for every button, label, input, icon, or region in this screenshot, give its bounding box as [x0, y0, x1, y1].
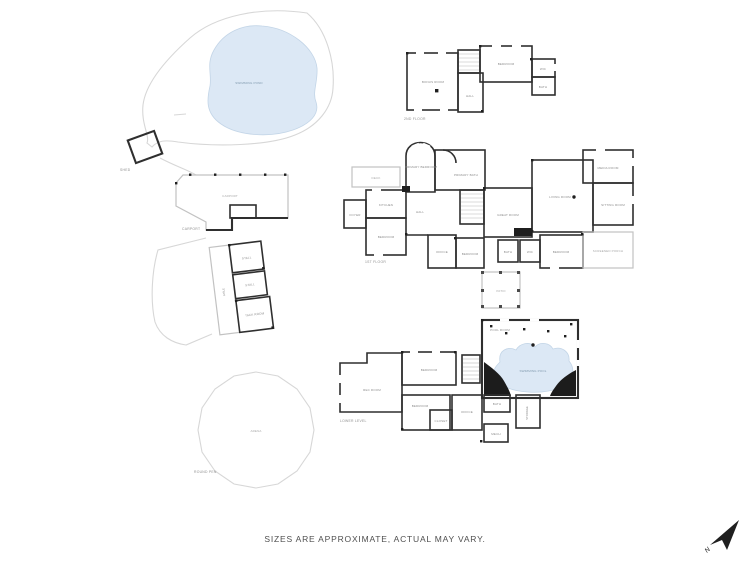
door-jamb — [406, 52, 408, 54]
patio-post — [481, 305, 484, 308]
primary-bath-label: PRIMARY BATH — [454, 173, 478, 177]
first-floor-plan: PRIMARY BEDROOM PRIMARY BATH GREAT ROOM … — [344, 143, 633, 309]
stair-hatch — [463, 359, 479, 379]
patio-post — [481, 271, 484, 274]
lot-tick — [174, 114, 186, 115]
patio-post — [481, 289, 484, 292]
bath-label: BATH — [493, 402, 501, 406]
door-jamb — [454, 237, 456, 239]
round-pen-caption: ROUND PEN — [194, 470, 217, 474]
pond-label: SWIMMING POND — [235, 81, 263, 85]
post-marker — [264, 174, 266, 176]
door-jamb — [454, 351, 456, 353]
foyer-label: FOYER — [349, 213, 361, 217]
patio-post — [517, 305, 520, 308]
shed-walls — [128, 131, 163, 163]
site-pond: SWIMMING POND — [143, 11, 334, 175]
post-marker — [175, 182, 177, 184]
door-jamb — [235, 299, 238, 302]
patio-label: PATIO — [496, 289, 506, 293]
site-barn: AISLE STALL STALL TACK ROOM — [152, 238, 274, 345]
stair-room — [458, 50, 480, 73]
barn-aisle-label: AISLE — [221, 288, 226, 296]
post-marker — [531, 343, 534, 346]
lower-level-plan: POOL ROOM SWIMMING POOL — [340, 319, 578, 442]
rec-room-label: REC ROOM — [363, 388, 381, 392]
door-jamb — [581, 233, 583, 235]
chimney-marker — [435, 89, 438, 92]
chimney — [402, 186, 410, 192]
door-jamb — [481, 319, 483, 321]
post-marker — [284, 174, 286, 176]
shed-caption: SHED — [120, 168, 131, 172]
stair-hatch — [461, 194, 483, 218]
first-floor-caption: 1ST FLOOR — [365, 260, 386, 264]
door-jamb — [531, 159, 533, 161]
door-jamb — [483, 187, 485, 189]
post-marker — [570, 323, 572, 325]
disclaimer-text: SIZES ARE APPROXIMATE, ACTUAL MAY VARY. — [0, 534, 750, 544]
column-marker — [572, 195, 575, 198]
patio-post — [517, 271, 520, 274]
site-carport: CARPORT CARPORT — [175, 174, 288, 232]
bedroom-label: BEDROOM — [498, 62, 515, 66]
patio-post — [517, 289, 520, 292]
second-floor-plan: BONUS ROOM BEDROOM WIC BATH HALL 2ND FLO… — [404, 45, 555, 121]
carport-caption: CARPORT — [182, 227, 200, 231]
lower-level-caption: LOWER LEVEL — [340, 419, 367, 423]
round-pen-label: ARENA — [250, 429, 261, 433]
bedroom-mid-label: BEDROOM — [462, 252, 479, 256]
stair-hatch — [459, 54, 479, 70]
bonus-room-label: BONUS ROOM — [422, 80, 445, 84]
door-jamb — [401, 428, 403, 430]
great-room-label: GREAT ROOM — [497, 213, 519, 217]
barn-stall1-label: STALL — [242, 255, 252, 260]
mech-label: MECH — [491, 432, 500, 436]
bath-label: BATH — [539, 85, 547, 89]
carport-storage-room — [230, 205, 256, 218]
carport-label: CARPORT — [222, 194, 238, 198]
closet-label: CLOSET — [435, 419, 448, 423]
trail-line — [160, 158, 196, 175]
door-jamb — [228, 244, 231, 247]
post-marker — [214, 174, 216, 176]
curved-closet-wall — [443, 150, 456, 163]
primary-bath — [435, 150, 485, 190]
door-jamb — [271, 326, 274, 329]
door-jamb — [401, 351, 403, 353]
storage-label: STORAGE — [525, 406, 529, 420]
door-jamb — [531, 230, 533, 232]
sitting-room-label: SITTING ROOM — [601, 203, 625, 207]
post-marker — [564, 335, 566, 337]
site-and-floor-plans: SWIMMING POND SHED CARPORT CARPORT — [0, 0, 750, 563]
bath-label: BATH — [504, 250, 512, 254]
media-room-label: MEDIA ROOM — [597, 166, 618, 170]
bedroom-right-label: BEDROOM — [553, 250, 570, 254]
door-jamb — [530, 58, 532, 60]
compass-n-label: N — [704, 546, 712, 555]
patio-post — [499, 271, 502, 274]
rec-room — [340, 353, 402, 412]
pool-water-label: SWIMMING POOL — [519, 369, 546, 373]
door-jamb — [481, 110, 483, 112]
living-room-label: LIVING ROOM — [549, 195, 571, 199]
door-jamb — [405, 233, 407, 235]
post-marker — [189, 174, 191, 176]
barn-tack-label: TACK ROOM — [245, 311, 265, 317]
office-label: OFFICE — [436, 250, 448, 254]
fireplace — [514, 228, 532, 236]
bedroom-bottom-label: BEDROOM — [412, 404, 429, 408]
wic-label: WIC — [527, 250, 534, 254]
wic-label: WIC — [540, 67, 547, 71]
paddock-outline — [152, 238, 212, 345]
kitchen-label: KITCHEN — [379, 203, 393, 207]
bedroom-left-label: BEDROOM — [378, 235, 395, 239]
office-label: OFFICE — [461, 410, 473, 414]
post-marker — [523, 328, 525, 330]
screened-porch-label: SCREENED PORCH — [593, 249, 623, 253]
primary-bedroom-label: PRIMARY BEDROOM — [405, 165, 437, 169]
floor-plan-canvas: SWIMMING POND SHED CARPORT CARPORT — [0, 0, 750, 563]
barn-stall2-label: STALL — [245, 282, 255, 287]
second-floor-caption: 2ND FLOOR — [404, 117, 426, 121]
post-marker — [505, 332, 507, 334]
site-round-pen: ARENA ROUND PEN — [194, 372, 314, 488]
post-marker — [547, 330, 549, 332]
door-jamb — [262, 267, 265, 270]
patio-post — [499, 305, 502, 308]
site-shed: SHED — [120, 131, 162, 172]
pool-room-label: POOL ROOM — [490, 328, 510, 332]
carport-dark-walls — [206, 218, 288, 230]
bedroom-top-label: BEDROOM — [421, 368, 438, 372]
door-jamb — [480, 440, 482, 442]
hall-label: HALL — [416, 210, 424, 214]
deck-label: DECK — [372, 176, 381, 180]
door-jamb — [479, 45, 481, 47]
bedroom-bottom — [402, 395, 450, 430]
stairwell — [460, 190, 484, 224]
hall-label: HALL — [466, 94, 474, 98]
post-marker — [239, 174, 241, 176]
